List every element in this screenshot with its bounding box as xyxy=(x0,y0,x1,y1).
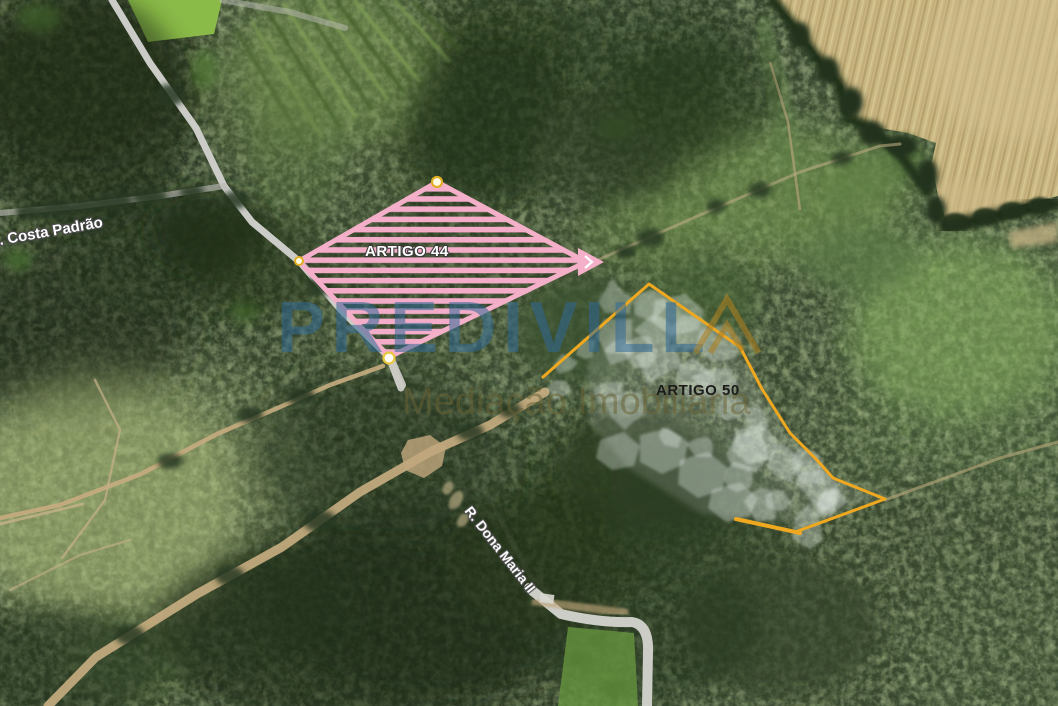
svg-text:ARTIGO 50: ARTIGO 50 xyxy=(656,382,740,399)
svg-text:ARTIGO 44: ARTIGO 44 xyxy=(365,243,449,260)
svg-text:PREDIVILL: PREDIVILL xyxy=(277,288,712,368)
